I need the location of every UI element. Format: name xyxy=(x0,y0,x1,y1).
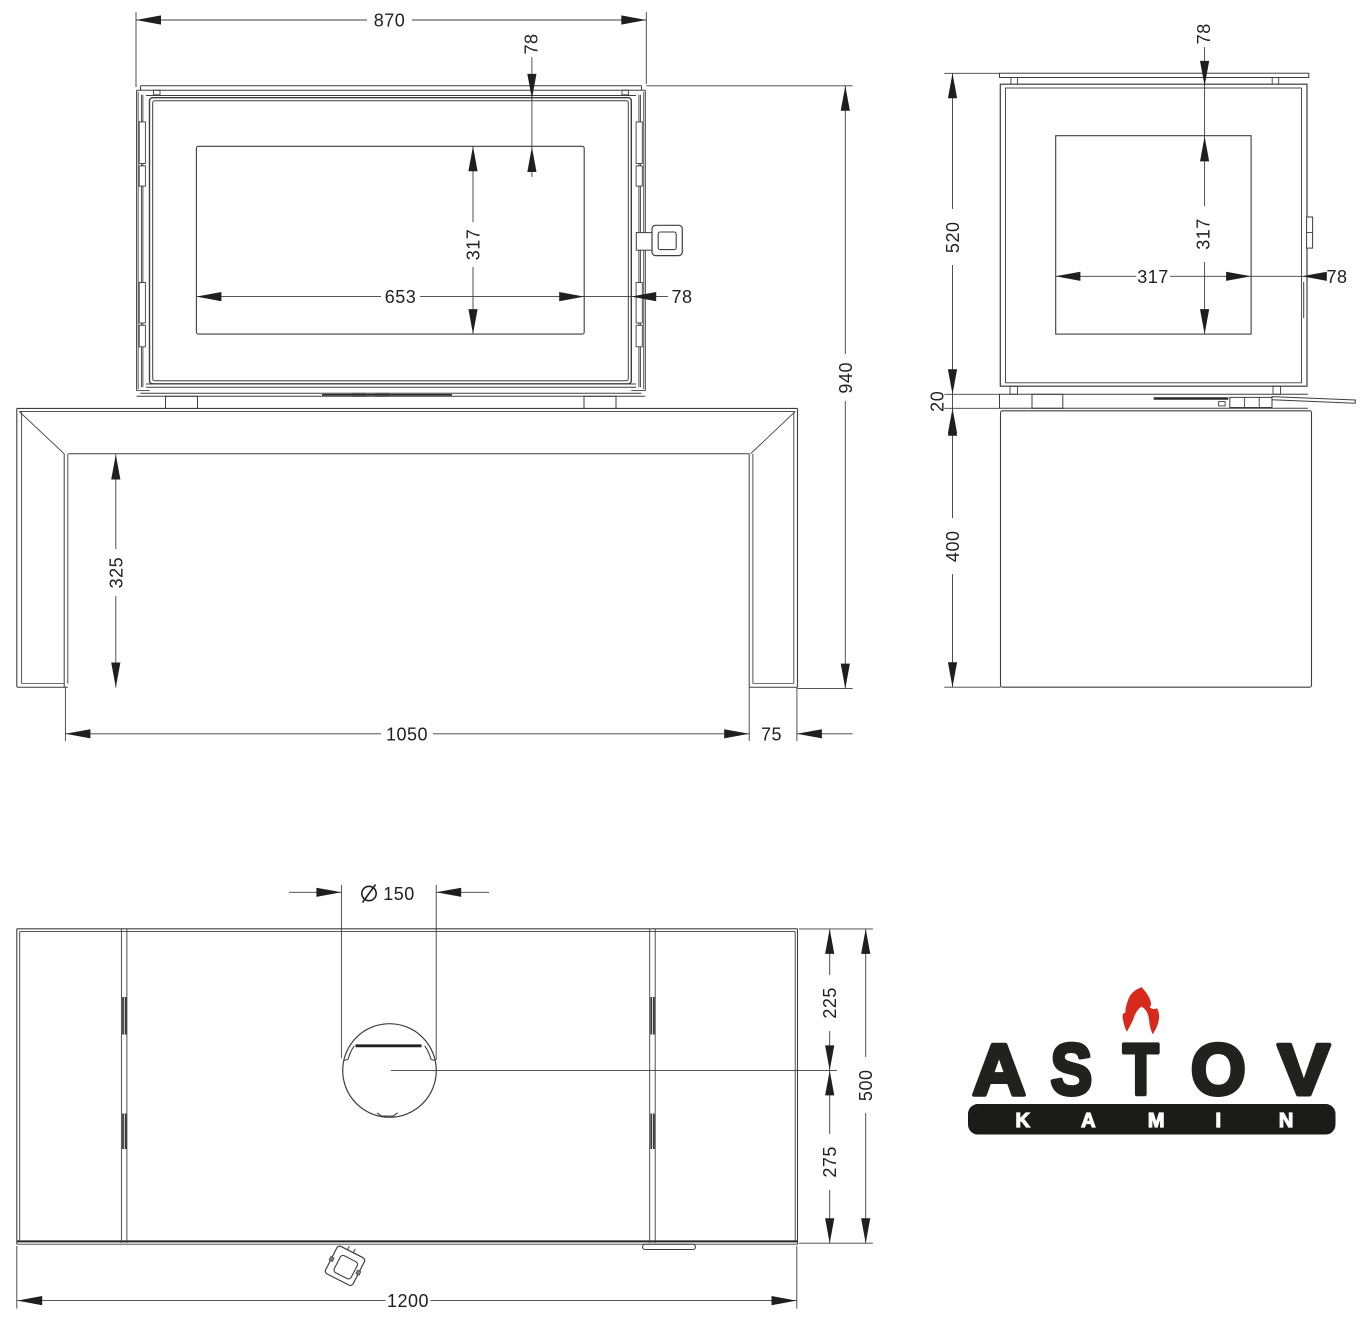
svg-text:K: K xyxy=(1015,1110,1030,1132)
svg-text:317: 317 xyxy=(464,229,484,261)
svg-text:317: 317 xyxy=(1193,218,1213,250)
svg-text:400: 400 xyxy=(943,531,963,563)
svg-text:A: A xyxy=(972,1031,1026,1111)
svg-text:I: I xyxy=(1216,1110,1222,1132)
svg-text:78: 78 xyxy=(521,33,541,54)
svg-text:V: V xyxy=(1278,1031,1330,1111)
svg-text:M: M xyxy=(1148,1110,1165,1132)
svg-text:A: A xyxy=(1081,1110,1095,1132)
svg-text:325: 325 xyxy=(106,557,126,589)
svg-text:S: S xyxy=(1051,1031,1093,1111)
svg-text:O: O xyxy=(1191,1031,1246,1111)
svg-text:150: 150 xyxy=(383,884,415,904)
svg-text:500: 500 xyxy=(856,1070,876,1102)
svg-text:870: 870 xyxy=(374,11,406,31)
svg-text:1200: 1200 xyxy=(387,1291,429,1311)
svg-text:317: 317 xyxy=(1137,267,1169,287)
svg-text:225: 225 xyxy=(820,987,840,1019)
svg-text:275: 275 xyxy=(820,1146,840,1178)
svg-text:T: T xyxy=(1123,1031,1159,1111)
svg-text:75: 75 xyxy=(761,724,782,744)
svg-text:N: N xyxy=(1279,1110,1293,1132)
svg-text:78: 78 xyxy=(1326,267,1347,287)
svg-text:653: 653 xyxy=(385,287,417,307)
svg-text:940: 940 xyxy=(836,362,856,394)
svg-text:78: 78 xyxy=(671,287,692,307)
svg-text:1050: 1050 xyxy=(386,724,428,744)
svg-text:78: 78 xyxy=(1194,23,1214,44)
svg-text:20: 20 xyxy=(927,391,947,412)
svg-text:520: 520 xyxy=(943,222,963,254)
